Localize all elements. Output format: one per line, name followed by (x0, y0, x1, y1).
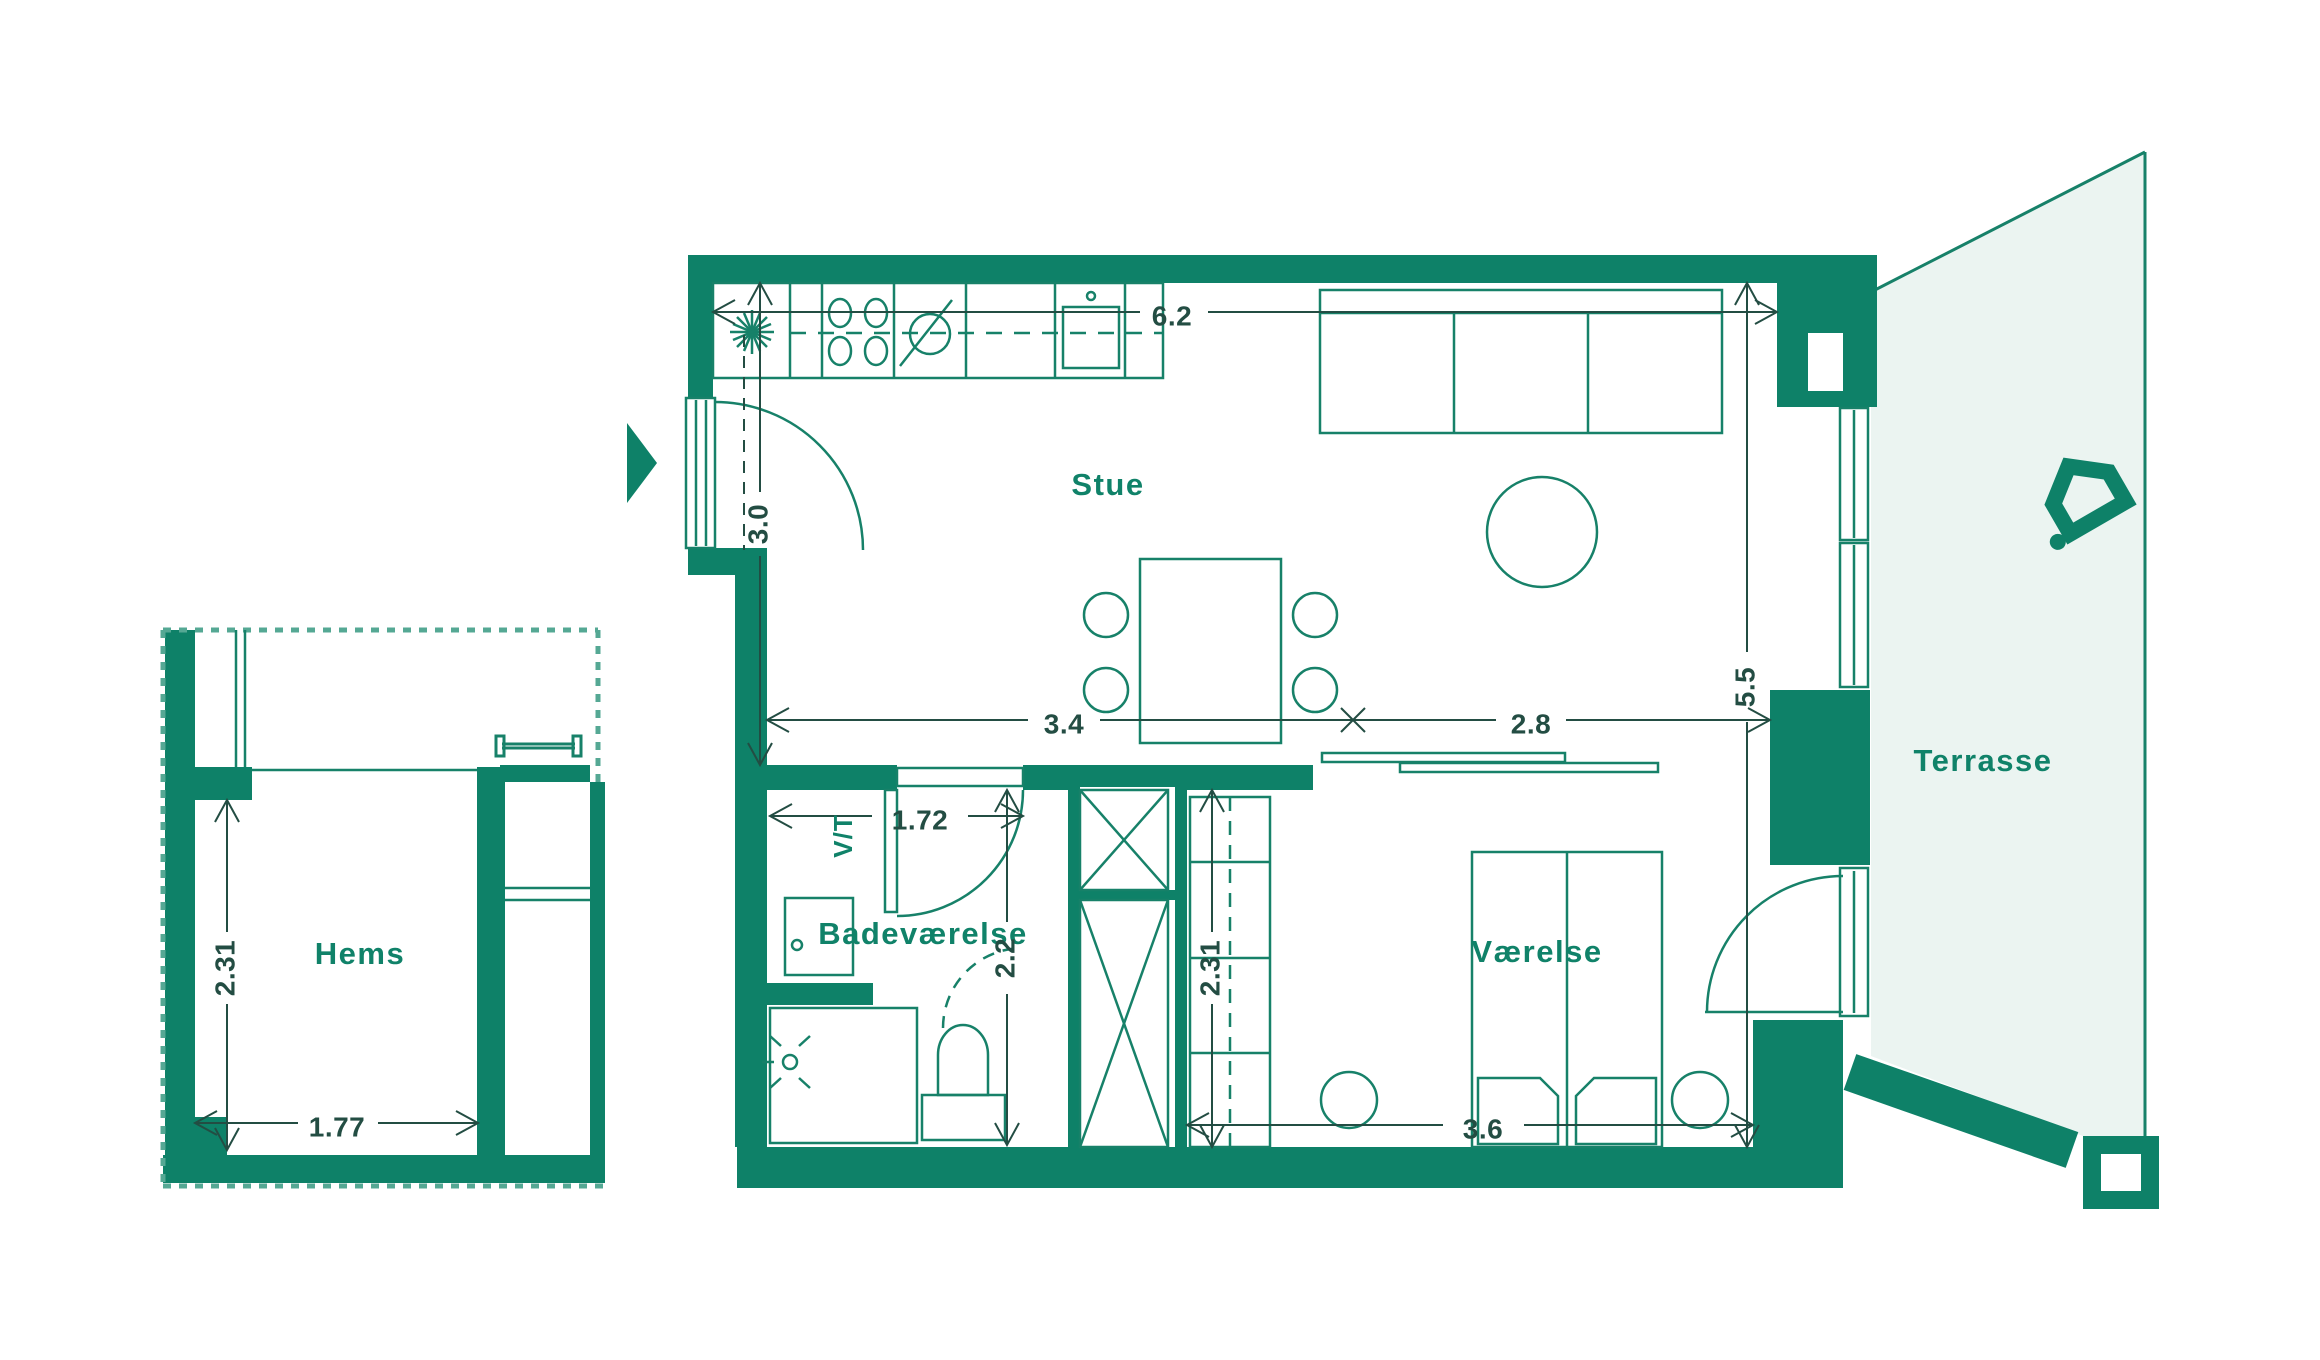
room-label-stue: Stue (1071, 467, 1144, 502)
round-rug (1487, 477, 1597, 587)
wall-shaft-top (1068, 765, 1187, 787)
wall-right-bottom-block (1753, 1020, 1843, 1147)
terrace-door (1705, 868, 1868, 1016)
wall-bath-stub (767, 983, 873, 1005)
dim-label-2-31-hems: 2.31 (209, 940, 240, 997)
double-bed (1472, 852, 1662, 1147)
closet-rod-icon (496, 736, 581, 756)
stue-furniture (1084, 290, 1722, 743)
dim-stue-width (713, 300, 1777, 324)
floorplan-page: Stue Badeværelse Værelse Terrasse Hems V… (0, 0, 2320, 1360)
dim-unit-depth (1735, 283, 1759, 1147)
room-label-hems: Hems (315, 936, 405, 971)
dining-table (1140, 559, 1281, 743)
hems-wall-left (165, 630, 195, 1155)
wall-bedroom-top (1187, 765, 1313, 790)
bedside-table (1321, 1072, 1377, 1128)
dim-label-2-8: 2.8 (1511, 708, 1551, 739)
hems-wall-bottom (163, 1155, 605, 1183)
terrace-column-core (2101, 1154, 2141, 1191)
wall-bath-top-right (1023, 765, 1068, 790)
hems-wall-right (477, 767, 505, 1155)
wall-bottom (737, 1147, 1843, 1188)
dim-label-2-2: 2.2 (989, 938, 1020, 978)
chair (1293, 668, 1337, 712)
dim-label-3-4: 3.4 (1044, 708, 1084, 739)
main-unit-walls (688, 255, 1877, 1188)
hems-dashed-outline (163, 630, 605, 1187)
dim-label-1-72: 1.72 (892, 804, 949, 835)
dim-label-2-31-bedroom: 2.31 (1194, 940, 1225, 997)
wall-shaft-mid (1080, 890, 1175, 900)
bedroom-sliding-door (1322, 753, 1658, 772)
entrance-door (686, 398, 863, 550)
hems-plan (163, 630, 605, 1187)
dim-label-3-0: 3.0 (742, 504, 773, 544)
dim-label-5-5: 5.5 (1729, 667, 1760, 707)
chair (1084, 668, 1128, 712)
hems-closet-top (500, 765, 590, 782)
wall-shaft-right (1175, 765, 1187, 1147)
room-label-terrasse: Terrasse (1914, 743, 2053, 778)
hems-closet-right (590, 782, 605, 1155)
floorplan-drawing: Stue Badeværelse Værelse Terrasse Hems V… (0, 0, 2320, 1360)
dim-label-1-77: 1.77 (309, 1111, 366, 1142)
hems-wall-stub (195, 767, 252, 800)
entrance-door-arc (715, 402, 863, 550)
washer-dryer-label: V/T (828, 814, 858, 857)
dim-label-3-6: 3.6 (1463, 1113, 1503, 1144)
chair (1293, 593, 1337, 637)
wall-top (688, 255, 1777, 283)
pillow (1576, 1078, 1656, 1144)
dining-set (1084, 559, 1337, 743)
shaft-box-lower (1080, 900, 1168, 1147)
sink-star-icon (730, 310, 774, 354)
terrace-door-arc (1707, 876, 1843, 1012)
toilet (922, 1025, 1005, 1140)
wall-shaft-left (1068, 765, 1080, 1147)
terrace-floor (1871, 152, 2145, 1136)
wall-bath-top-left (767, 765, 897, 790)
kitchen-counter (713, 283, 1163, 378)
wall-right-pier (1770, 690, 1870, 865)
chair (1084, 593, 1128, 637)
terrace (1850, 152, 2159, 1209)
wall-left-jog (688, 548, 767, 575)
terrace-window (1840, 408, 1868, 687)
room-label-vaerelse: Værelse (1471, 934, 1602, 969)
dim-label-6-2: 6.2 (1152, 300, 1192, 331)
entrance-arrow-icon (627, 423, 657, 503)
shaft-box-upper (1080, 790, 1168, 890)
wall-corner-notch (1808, 333, 1843, 391)
wall-left-upper (688, 283, 713, 398)
bedside-table (1672, 1072, 1728, 1128)
bedroom-furniture (1190, 797, 1728, 1147)
technical-shaft (1080, 790, 1168, 1147)
dim-stue-right (1353, 708, 1770, 732)
oven-icon (1063, 292, 1119, 368)
bathroom-door (885, 768, 1023, 916)
shower (762, 1008, 917, 1143)
